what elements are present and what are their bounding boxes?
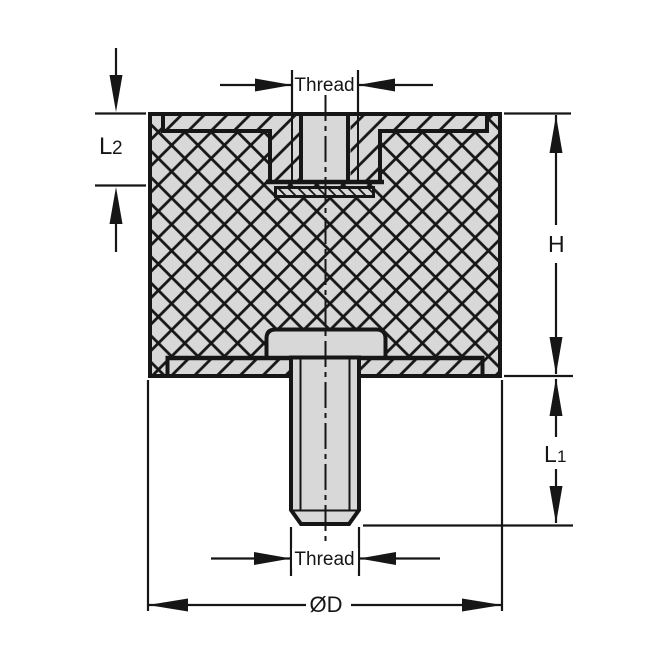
svg-text:Thread: Thread [294, 549, 354, 570]
svg-text:2: 2 [112, 138, 123, 159]
svg-text:H: H [548, 231, 565, 257]
svg-text:1: 1 [557, 447, 566, 466]
svg-text:ØD: ØD [310, 592, 343, 617]
svg-text:L: L [99, 133, 112, 160]
svg-text:Thread: Thread [294, 75, 354, 96]
svg-text:L: L [544, 441, 557, 467]
